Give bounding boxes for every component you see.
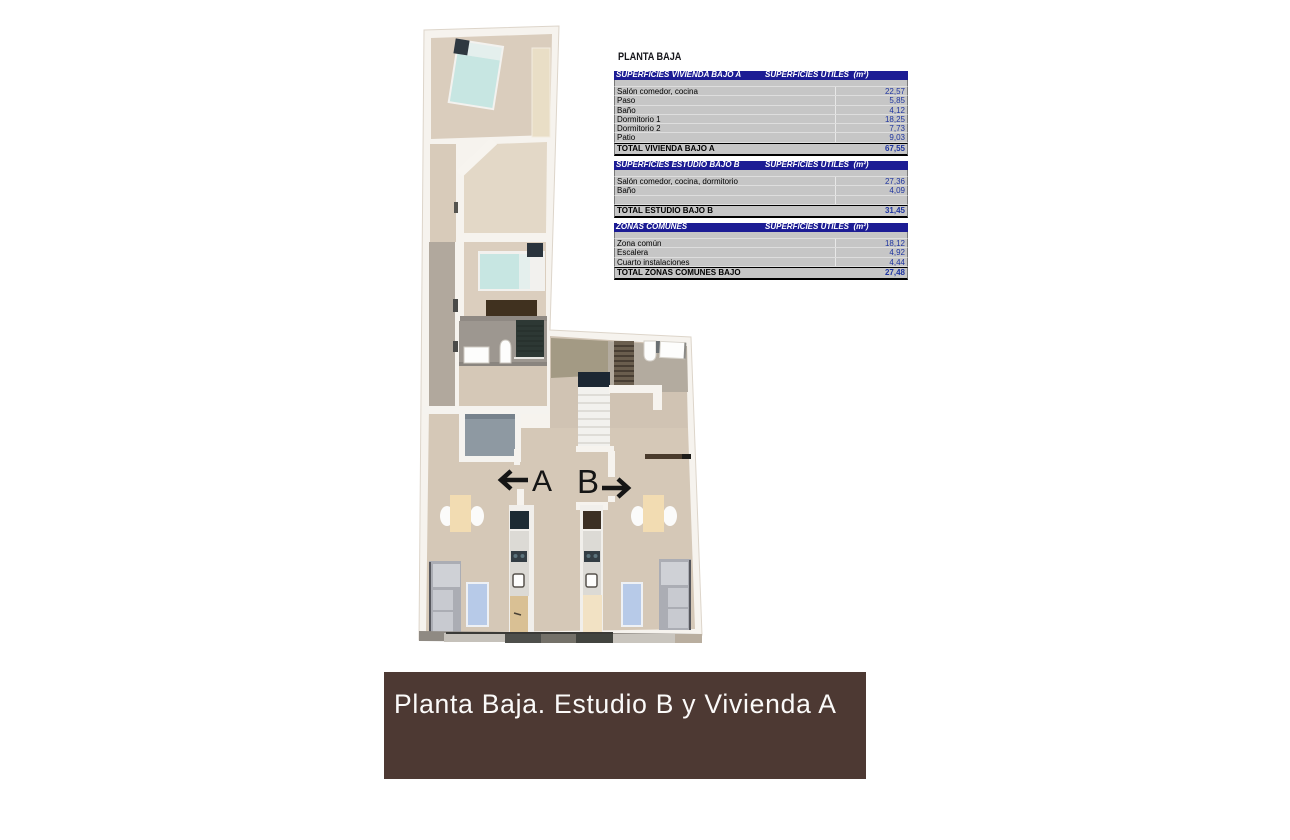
svg-text:B: B [577,463,599,500]
svg-text:A: A [532,465,552,498]
